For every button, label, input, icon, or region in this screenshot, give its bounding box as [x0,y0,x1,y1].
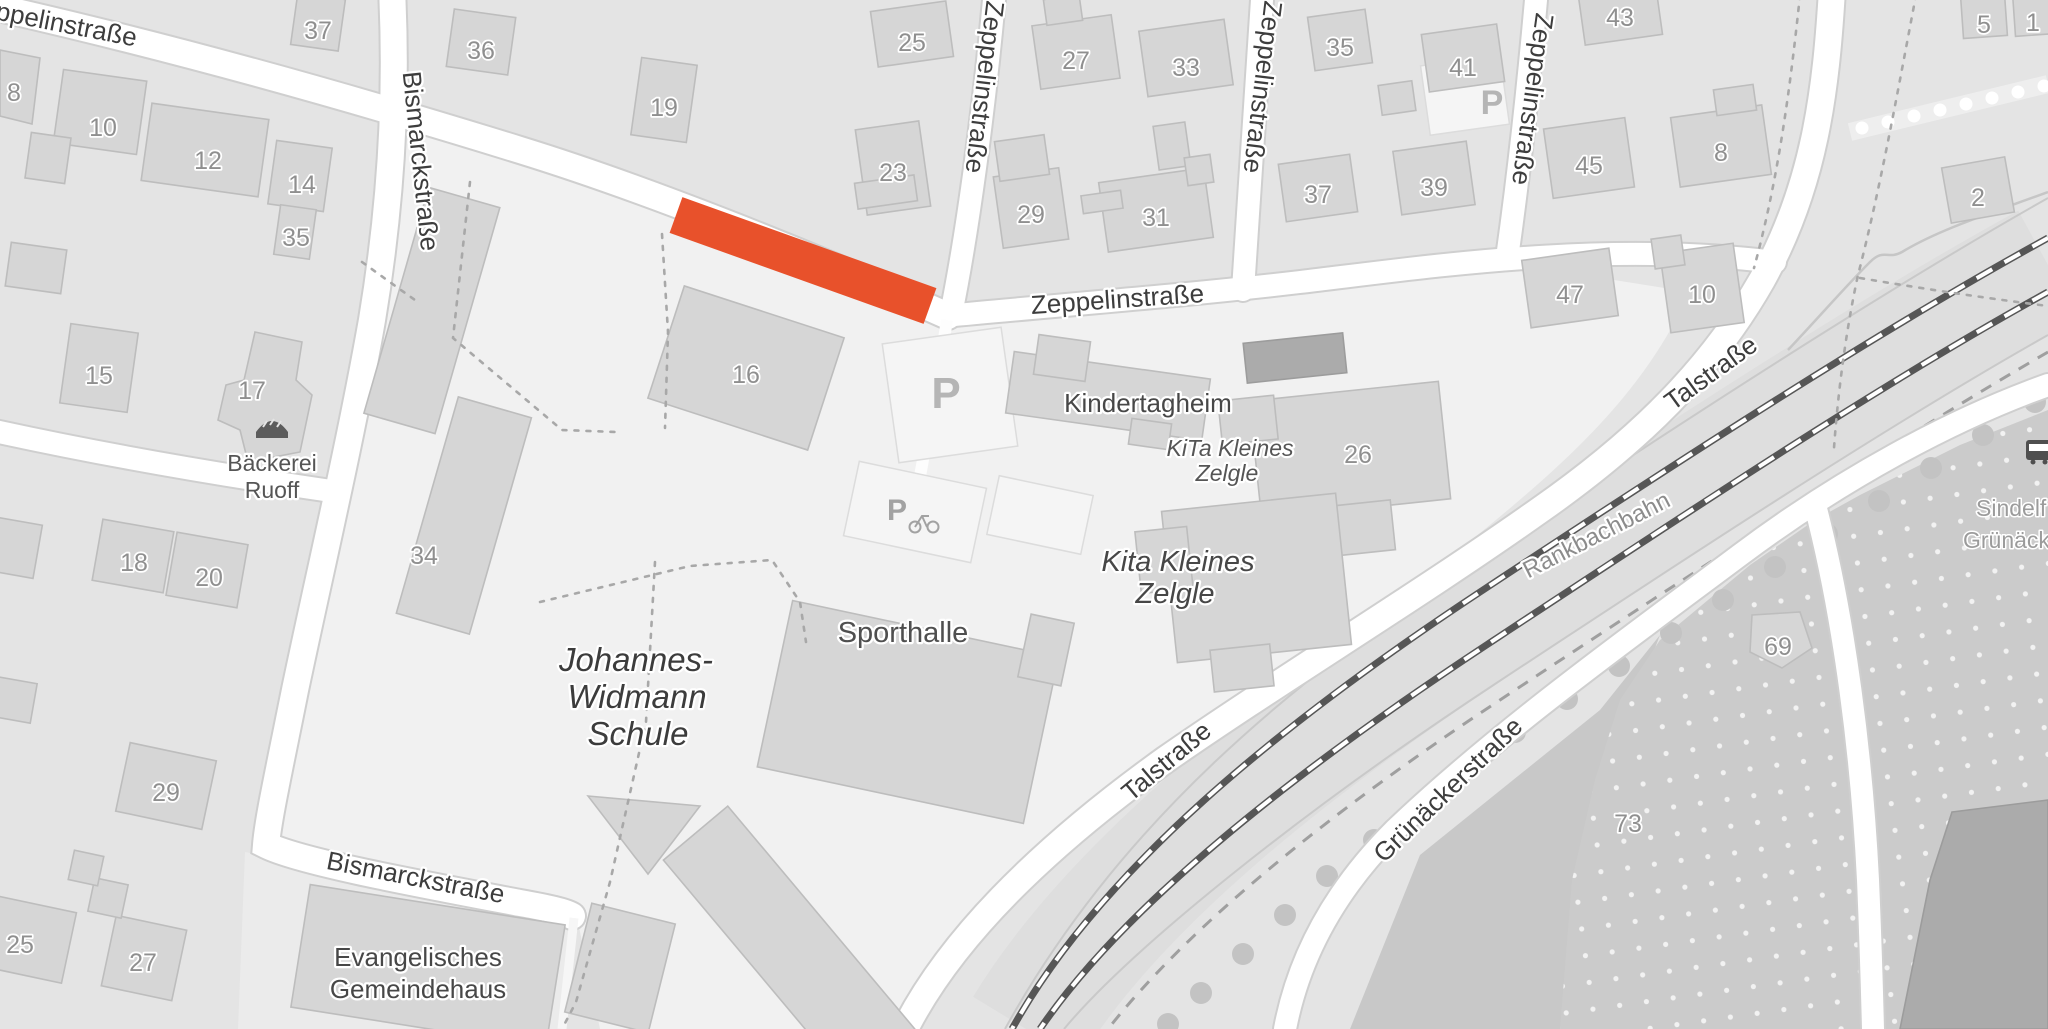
building [68,850,104,886]
house-number: 20 [195,564,223,592]
building [1651,235,1685,269]
label-schule: Widmann [567,678,706,715]
house-number: 73 [1614,810,1642,838]
house-number: 29 [1017,201,1045,229]
bus-wheel [2043,460,2048,465]
tree-dot [1712,589,1734,611]
building [1378,81,1416,115]
label-gemeindehaus: Evangelisches [334,942,502,972]
label-gemeindehaus: Gemeindehaus [330,974,506,1004]
house-number: 23 [879,159,907,187]
label-bus-stop: Grünäck [1963,527,2048,553]
label-kita-big: Zelgle [1135,578,1215,610]
house-number: 17 [238,377,266,405]
house-number: 27 [1062,47,1090,75]
house-number: 37 [304,17,332,45]
house-number: 43 [1606,4,1634,32]
parking-icon: P [1481,84,1504,122]
parking-icon: P [931,369,960,418]
building [25,132,71,183]
building [5,242,67,293]
building [0,677,37,723]
map-svg: P P P 37 36 19 25 23 27 33 29 31 35 37 3… [0,0,2048,1029]
house-number: 27 [129,949,157,977]
track-dot [2012,86,2025,99]
house-number: 10 [1688,281,1716,309]
house-number: 31 [1142,204,1170,232]
house-number: 35 [282,224,310,252]
building [1033,335,1090,382]
tree-dot [1190,982,1212,1004]
label-kita-big: Kita Kleines [1101,546,1254,578]
building [994,135,1049,182]
house-number: 26 [1344,441,1372,469]
building [1128,418,1171,449]
tree-dot [1764,556,1786,578]
house-number: 19 [650,94,678,122]
house-number: 39 [1420,174,1448,202]
house-number: 16 [732,361,760,389]
house-number: 29 [152,779,180,807]
parking-icon: P [887,494,907,527]
house-number: 36 [467,37,495,65]
building [1713,84,1756,115]
house-number: 5 [1977,11,1991,39]
house-number: 10 [89,114,117,142]
label-baeckerei: Ruoff [245,477,300,503]
label-baeckerei: Bäckerei [227,450,316,476]
tree-dot [1232,943,1254,965]
house-number: 8 [1714,139,1728,167]
label-kita-small: KiTa Kleines [1166,435,1294,461]
building [1043,0,1082,25]
house-number: 2 [1971,184,1985,212]
track-dot [1960,98,1973,111]
label-schule: Johannes- [558,641,713,678]
house-number: 33 [1172,54,1200,82]
house-number: 25 [898,29,926,57]
building [1184,154,1214,185]
track-dot [1986,92,1999,105]
house-number: 18 [120,549,148,577]
bus-wheel [2031,460,2036,465]
house-number: 25 [6,931,34,959]
track-dot [1856,122,1869,135]
house-number: 69 [1764,633,1792,661]
tree-dot [1920,457,1942,479]
building [1210,644,1274,692]
house-number: 41 [1449,54,1477,82]
house-number: 35 [1326,34,1354,62]
house-number: 34 [410,542,438,570]
track-dot [1908,110,1921,123]
house-number: 12 [194,147,222,175]
label-bus-stop: Sindelf [1976,495,2047,521]
house-number: 45 [1575,152,1603,180]
map-canvas[interactable]: P P P 37 36 19 25 23 27 33 29 31 35 37 3… [0,0,2048,1029]
label-kita-small: Zelgle [1195,460,1259,486]
bus-window [2029,444,2048,451]
house-number: 8 [7,79,21,107]
label-schule: Schule [588,715,689,752]
house-number: 1 [2026,9,2040,37]
house-number: 47 [1556,281,1584,309]
label-sporthalle: Sporthalle [838,617,969,649]
tree-dot [1274,904,1296,926]
house-number: 14 [288,171,316,199]
house-number: 37 [1304,181,1332,209]
track-dot [1934,104,1947,117]
label-kindertagheim: Kindertagheim [1064,388,1232,418]
tree-dot [1868,490,1890,512]
house-number: 15 [85,362,113,390]
